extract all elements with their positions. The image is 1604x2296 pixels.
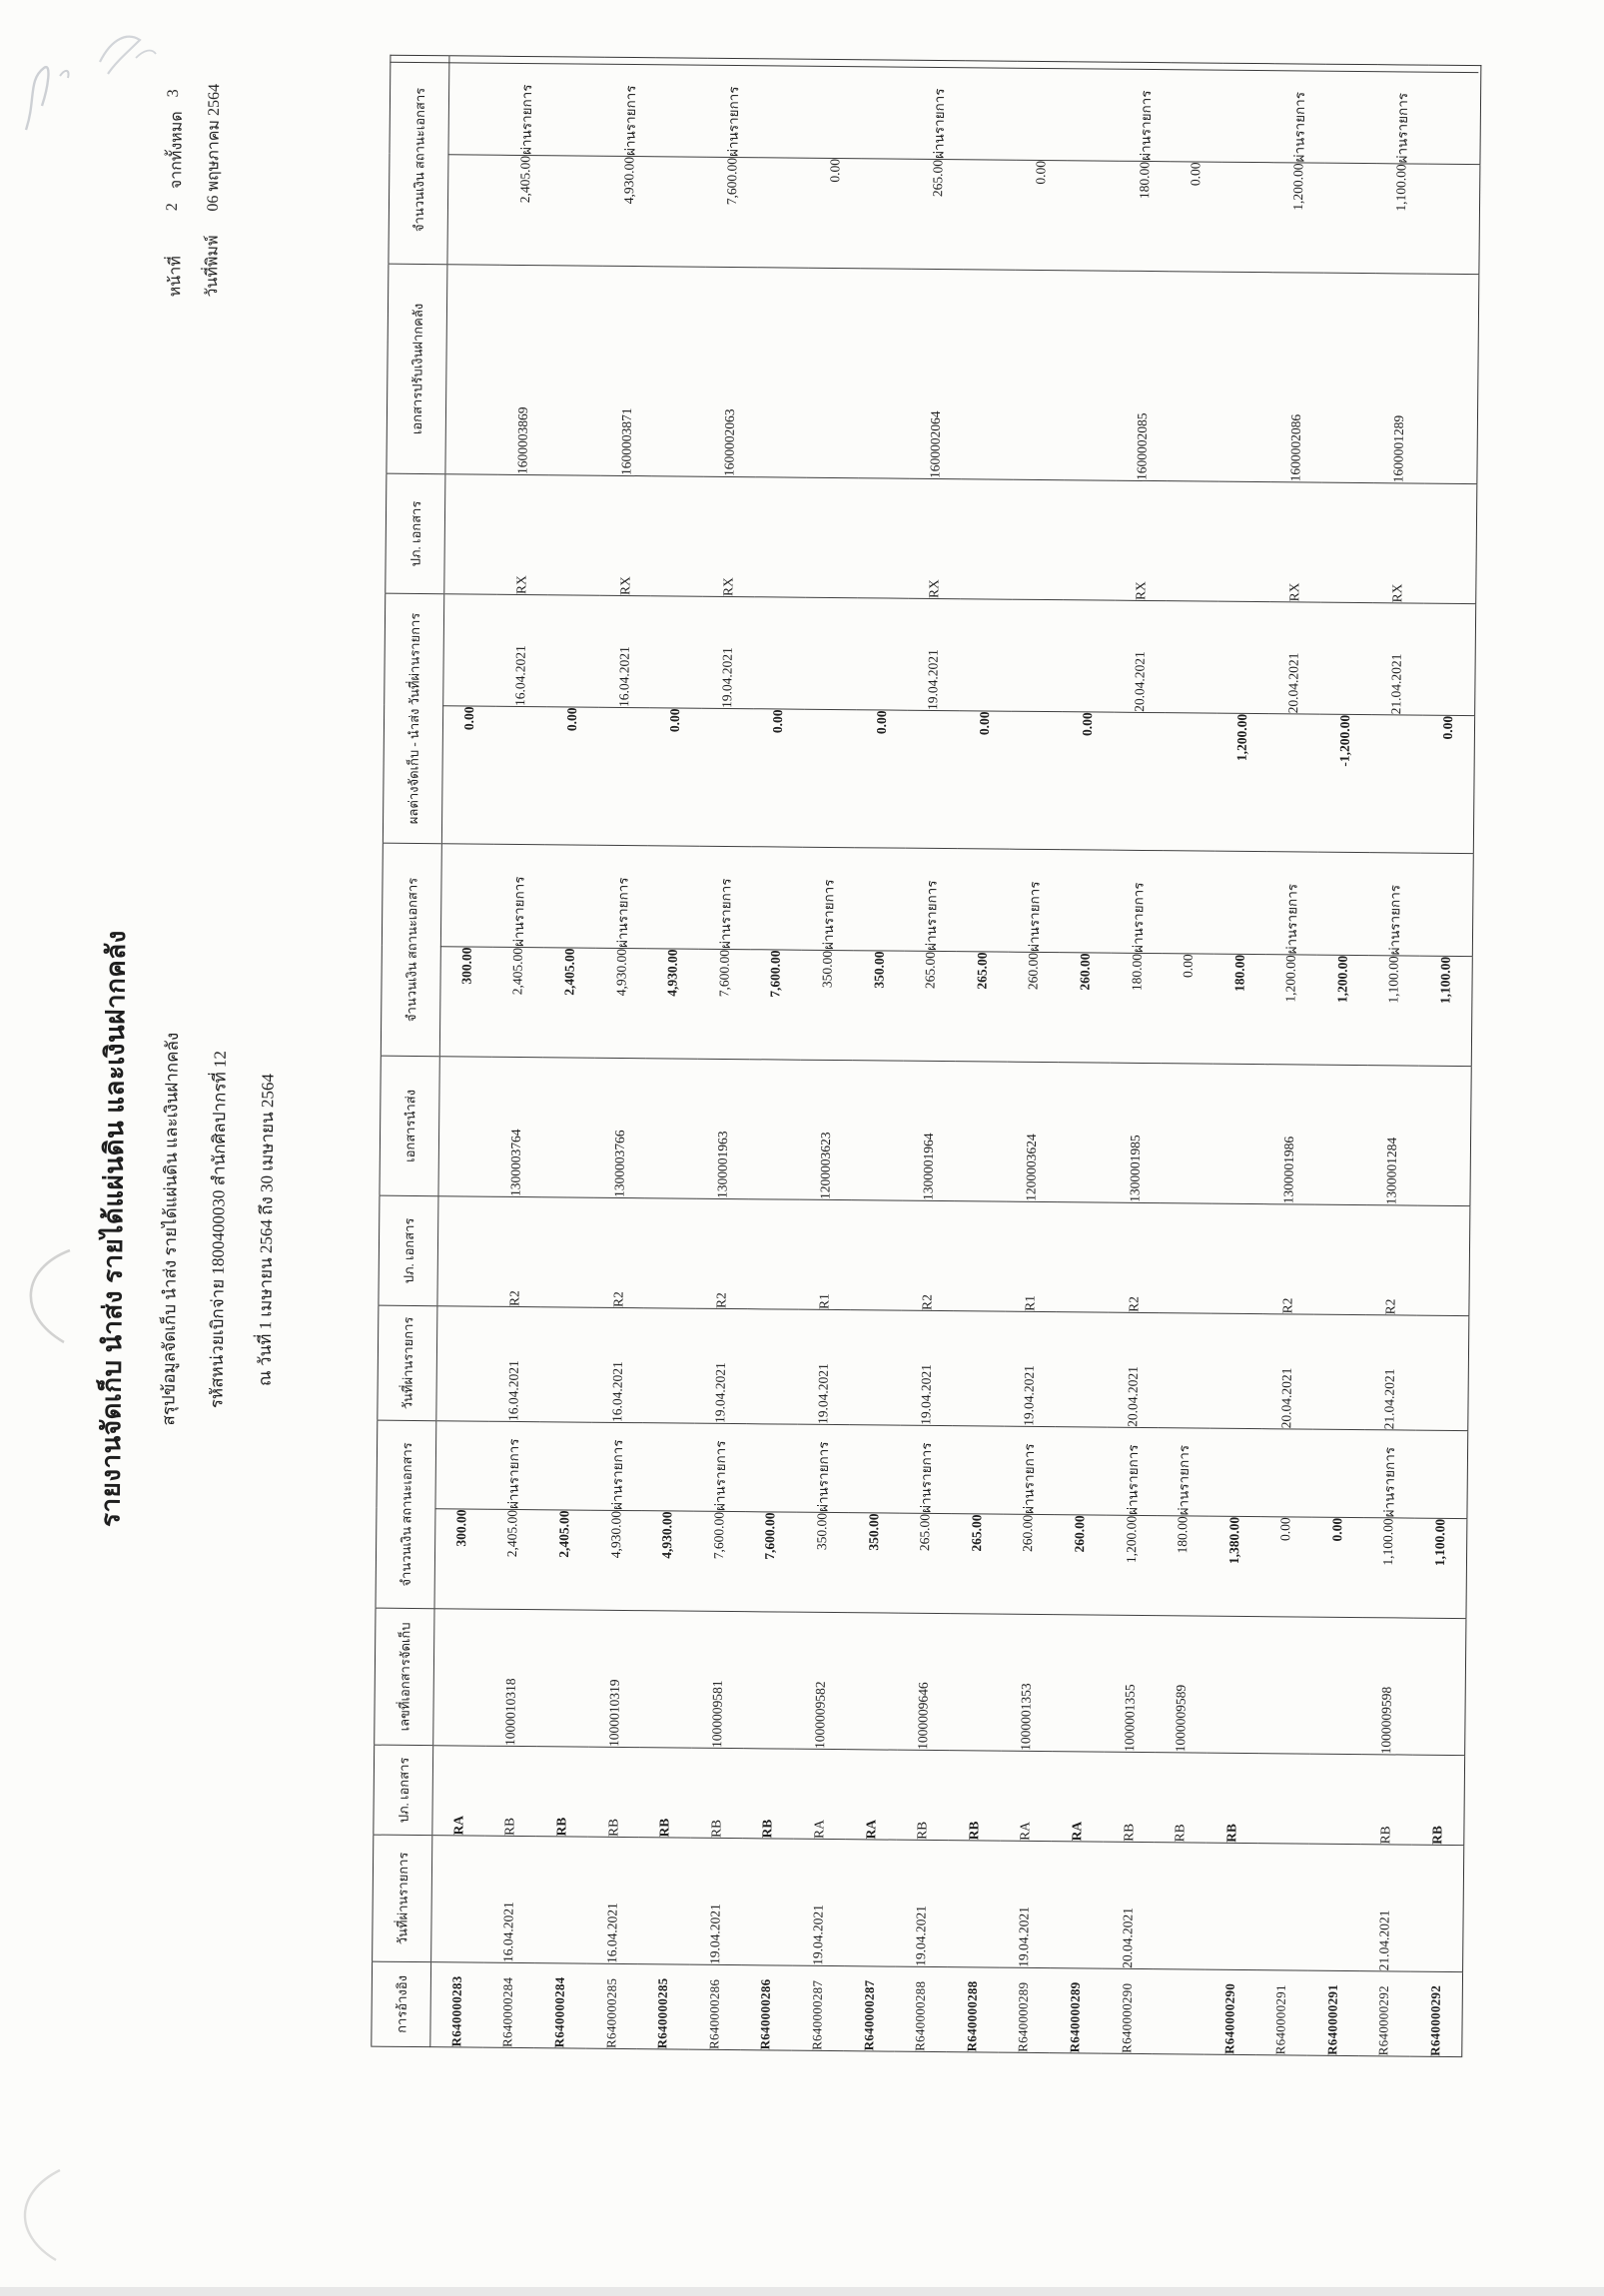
page-total: 3 bbox=[165, 89, 190, 97]
cell: RB bbox=[690, 1748, 742, 1838]
cell: 16.04.2021 bbox=[488, 1306, 541, 1421]
cell bbox=[1164, 713, 1216, 851]
page-of-label: จากทั้งหมด bbox=[164, 111, 190, 189]
cell: 2,405.00 bbox=[491, 947, 544, 1057]
cell bbox=[651, 476, 704, 596]
report-table: การอ้างอิงวันที่ผ่านรายการปภ. เอกสารเลขท… bbox=[371, 55, 1481, 2057]
cell: RX bbox=[1115, 480, 1168, 600]
cell bbox=[844, 1840, 897, 1966]
cell: 0.00 bbox=[1061, 712, 1114, 850]
column-header: จำนวนเงิน สถานะเอกสาร bbox=[381, 843, 441, 1057]
cell bbox=[1013, 270, 1067, 479]
column-header: ปภ. เอกสาร bbox=[379, 1195, 438, 1306]
cell: R1 bbox=[799, 1199, 852, 1309]
cell: ผ่านรายการ bbox=[1106, 1427, 1158, 1516]
cell bbox=[758, 59, 811, 159]
cell: 19.04.2021 bbox=[689, 1838, 742, 1964]
cell: -1,200.00 bbox=[1318, 714, 1371, 852]
cell: 265.00 bbox=[904, 951, 957, 1061]
cell bbox=[1208, 1428, 1260, 1517]
cell bbox=[1220, 162, 1273, 272]
cell: ผ่านรายการ bbox=[1363, 1430, 1415, 1519]
cell bbox=[644, 1198, 697, 1308]
cell bbox=[539, 1307, 592, 1422]
cell: 1000009581 bbox=[691, 1611, 744, 1748]
cell: 21.04.2021 bbox=[1371, 603, 1424, 715]
cell: 1000001355 bbox=[1104, 1615, 1157, 1752]
cell: R640000284 bbox=[482, 1962, 534, 2047]
cell: 1300003766 bbox=[593, 1058, 646, 1197]
cell: ผ่านรายการ bbox=[1369, 853, 1422, 957]
cell bbox=[953, 1201, 1006, 1311]
cell bbox=[1055, 1312, 1108, 1427]
cell: 1600003871 bbox=[600, 266, 654, 475]
cell bbox=[957, 849, 1010, 953]
cell bbox=[860, 159, 913, 269]
cell bbox=[741, 1839, 794, 1965]
cell: RB bbox=[1360, 1755, 1412, 1845]
cell: R640000287 bbox=[791, 1965, 843, 2050]
cell bbox=[1325, 64, 1378, 164]
cell: 180.00 bbox=[1213, 954, 1266, 1064]
cell bbox=[547, 475, 600, 595]
cell bbox=[964, 61, 1017, 161]
cell bbox=[1163, 851, 1215, 955]
cell: R2 bbox=[1262, 1204, 1315, 1314]
cell: 350.00 bbox=[847, 1513, 900, 1613]
cell bbox=[1422, 603, 1475, 715]
cell bbox=[1153, 1969, 1204, 2054]
cell: ผ่านรายการ bbox=[1273, 64, 1326, 164]
cell bbox=[1062, 600, 1115, 712]
report-table-wrapper: การอ้างอิงวันที่ผ่านรายการปภ. เอกสารเลขท… bbox=[371, 56, 1478, 2057]
cell: 1200003624 bbox=[1006, 1062, 1059, 1201]
cell: RB bbox=[1155, 1753, 1206, 1843]
cell: 300.00 bbox=[434, 1509, 487, 1609]
cell: RB bbox=[897, 1750, 949, 1840]
cell bbox=[435, 1421, 488, 1510]
cell: 19.04.2021 bbox=[895, 1840, 948, 1966]
cell: ผ่านรายการ bbox=[905, 848, 958, 952]
cell: ผ่านรายการ bbox=[913, 60, 966, 160]
cell: ผ่านรายการ bbox=[1265, 852, 1318, 956]
cell: R640000286 bbox=[740, 1965, 792, 2050]
cell: 16.04.2021 bbox=[483, 1836, 536, 1962]
cell bbox=[846, 1613, 899, 1750]
cell: 180.00 bbox=[1157, 1516, 1209, 1616]
cell: RA bbox=[793, 1749, 845, 1839]
cell: RA bbox=[432, 1746, 485, 1836]
cell: 1,200.00 bbox=[1264, 955, 1317, 1065]
cell: 4,930.00 bbox=[595, 948, 648, 1058]
cell: 1000009582 bbox=[794, 1612, 847, 1749]
cell bbox=[542, 1058, 595, 1197]
cell bbox=[1063, 480, 1116, 600]
cell bbox=[438, 1057, 491, 1196]
cell bbox=[1309, 1617, 1362, 1754]
cell: R640000287 bbox=[843, 1966, 895, 2051]
cell: 1300001964 bbox=[903, 1061, 956, 1200]
cell: RX bbox=[599, 475, 652, 595]
cell bbox=[431, 1836, 484, 1962]
cell bbox=[750, 847, 803, 951]
cell: R640000288 bbox=[946, 1967, 998, 2052]
cell: RB bbox=[1205, 1753, 1257, 1843]
cell bbox=[851, 1061, 904, 1200]
column-header: ผลต่างจัดเก็บ - นำส่ง วันที่ผ่านรายการ bbox=[383, 593, 443, 844]
cell bbox=[856, 598, 909, 710]
cell: ผ่านรายการ bbox=[487, 1421, 539, 1510]
cell: 20.04.2021 bbox=[1261, 1314, 1314, 1429]
cell: R640000290 bbox=[1101, 1968, 1153, 2053]
cell: RB bbox=[484, 1746, 536, 1836]
cell: 20.04.2021 bbox=[1102, 1842, 1155, 1968]
cell bbox=[650, 596, 703, 708]
column-header: วันที่ผ่านรายการ bbox=[373, 1835, 432, 1962]
cell: 0.00 bbox=[1259, 1517, 1312, 1617]
cell: RA bbox=[845, 1750, 897, 1840]
cell bbox=[807, 268, 861, 477]
cell bbox=[1067, 161, 1120, 271]
cell: 1300001985 bbox=[1109, 1063, 1162, 1202]
cell: 16.04.2021 bbox=[586, 1837, 639, 1963]
cell bbox=[745, 1424, 797, 1513]
cell bbox=[1423, 483, 1476, 603]
cell bbox=[747, 1199, 800, 1309]
page-number: 2 bbox=[164, 203, 189, 211]
cell: 1,100.00 bbox=[1375, 164, 1428, 274]
cell: RB bbox=[948, 1751, 1000, 1841]
cell bbox=[1221, 63, 1274, 163]
cell bbox=[1214, 851, 1267, 955]
cell: RB bbox=[587, 1747, 639, 1837]
cell: 7,600.00 bbox=[692, 1511, 745, 1611]
cell bbox=[1319, 602, 1372, 714]
cell: R640000292 bbox=[1410, 1971, 1463, 2056]
cell bbox=[1416, 1315, 1469, 1430]
cell bbox=[546, 595, 599, 707]
cell: 1000001353 bbox=[1001, 1614, 1054, 1751]
cell bbox=[743, 1612, 796, 1749]
cell bbox=[1065, 271, 1119, 480]
cell: R640000284 bbox=[533, 1963, 585, 2048]
cell bbox=[1320, 482, 1373, 602]
cell: 16.04.2021 bbox=[598, 595, 651, 707]
cell bbox=[1418, 1066, 1471, 1205]
cell: 1300001284 bbox=[1366, 1066, 1419, 1205]
cell: 20.04.2021 bbox=[1107, 1312, 1160, 1427]
cell bbox=[1050, 1842, 1103, 1968]
cell bbox=[1257, 1754, 1309, 1844]
cell bbox=[1369, 715, 1422, 853]
cell: R2 bbox=[1365, 1205, 1418, 1315]
cell: 260.00 bbox=[1002, 1514, 1055, 1614]
cell: R640000291 bbox=[1306, 1970, 1358, 2055]
cell: R640000288 bbox=[895, 1966, 947, 2051]
cell bbox=[1161, 1064, 1213, 1203]
cell: ผ่านรายการ bbox=[500, 56, 553, 156]
cell bbox=[1211, 1064, 1264, 1203]
cell: 0.00 bbox=[1170, 162, 1222, 272]
cell bbox=[700, 708, 753, 846]
cell: RA bbox=[1051, 1752, 1103, 1842]
cell bbox=[1068, 62, 1121, 162]
cell bbox=[541, 1197, 594, 1307]
cell bbox=[1307, 1844, 1360, 1970]
cell: 7,600.00 bbox=[744, 1512, 797, 1612]
cell: ผ่านรายการ bbox=[1112, 850, 1165, 954]
cell: 1,200.00 bbox=[1105, 1515, 1158, 1615]
cell bbox=[954, 1062, 1007, 1201]
column-header: เอกสารปรับเงินฝากคลัง bbox=[387, 264, 447, 474]
cell bbox=[1159, 1313, 1211, 1428]
cell bbox=[1415, 1430, 1468, 1519]
cell bbox=[1420, 853, 1473, 957]
cell: 0.00 bbox=[441, 706, 494, 844]
cell bbox=[1171, 63, 1223, 163]
cell: RX bbox=[496, 474, 549, 594]
cell: 265.00 bbox=[956, 952, 1009, 1062]
cell: 1,100.00 bbox=[1367, 956, 1420, 1066]
cell: ผ่านรายการ bbox=[1119, 62, 1172, 162]
cell bbox=[652, 267, 706, 476]
cell: 265.00 bbox=[950, 1514, 1003, 1614]
cell bbox=[1312, 1429, 1364, 1518]
cell: R2 bbox=[489, 1196, 542, 1306]
cell bbox=[951, 1426, 1003, 1515]
cell: 0.00 bbox=[809, 158, 862, 268]
cell: 7,600.00 bbox=[749, 950, 802, 1060]
cell: 1300001963 bbox=[696, 1059, 749, 1198]
cell bbox=[1209, 1313, 1262, 1428]
cell bbox=[445, 265, 499, 474]
cell bbox=[1266, 714, 1319, 852]
cell: RX bbox=[702, 476, 755, 596]
cell: 1300003764 bbox=[490, 1057, 543, 1196]
cell: RX bbox=[1372, 483, 1425, 603]
column-header: เลขที่เอกสารจัดเก็บ bbox=[375, 1608, 434, 1746]
cell: 2,405.00 bbox=[543, 948, 596, 1058]
cell bbox=[552, 57, 605, 157]
cell bbox=[805, 477, 858, 597]
cell: 20.04.2021 bbox=[1114, 600, 1167, 712]
cell bbox=[949, 1614, 1002, 1751]
cell bbox=[1308, 1754, 1360, 1844]
cell bbox=[1317, 852, 1370, 956]
cell bbox=[493, 706, 546, 844]
cell: 7,600.00 bbox=[705, 157, 758, 267]
cell: 19.04.2021 bbox=[792, 1839, 845, 1965]
cell: 350.00 bbox=[853, 951, 906, 1061]
cell: 1600001289 bbox=[1373, 274, 1427, 483]
cell bbox=[1160, 1203, 1212, 1313]
cell: R2 bbox=[902, 1200, 955, 1310]
cell: R2 bbox=[592, 1197, 645, 1307]
cell: 0.00 bbox=[1421, 715, 1474, 853]
cell bbox=[1217, 481, 1270, 601]
column-header: ปภ. เอกสาร bbox=[386, 473, 445, 594]
cell bbox=[1204, 1843, 1257, 1969]
cell: ผ่านรายการ bbox=[1008, 849, 1061, 953]
report-title: รายงานจัดเก็บ นำส่ง รายได้แผ่นดิน และเงิ… bbox=[89, 729, 139, 1728]
cell bbox=[443, 594, 496, 706]
cell bbox=[1016, 61, 1069, 161]
report-subtitle: สรุปข้อมูลจัดเก็บ นำส่ง รายได้แผ่นดิน แล… bbox=[155, 730, 187, 1729]
cell: ผ่านรายการ bbox=[603, 57, 656, 157]
cell: 4,930.00 bbox=[641, 1511, 694, 1611]
cell: RB bbox=[1103, 1752, 1155, 1842]
cell bbox=[748, 1060, 801, 1199]
cell: 0.00 bbox=[648, 708, 701, 846]
cell bbox=[436, 1306, 489, 1421]
column-header: จำนวนเงิน สถานะเอกสาร bbox=[389, 55, 449, 265]
cell bbox=[1258, 1617, 1311, 1754]
cell bbox=[1410, 1845, 1463, 1971]
cell bbox=[947, 1841, 1000, 1967]
cell: R640000290 bbox=[1203, 1969, 1255, 2054]
cell bbox=[534, 1837, 587, 1963]
cell bbox=[803, 709, 856, 847]
cell: 300.00 bbox=[439, 947, 492, 1057]
cell: 19.04.2021 bbox=[999, 1841, 1052, 1967]
cell: 20.04.2021 bbox=[1268, 602, 1321, 714]
cell bbox=[437, 1196, 490, 1306]
cell: 4,930.00 bbox=[646, 949, 699, 1059]
cell: 265.00 bbox=[899, 1513, 952, 1613]
cell bbox=[1058, 1063, 1111, 1202]
cell bbox=[1427, 164, 1480, 274]
cell bbox=[757, 158, 810, 268]
cell: R640000285 bbox=[637, 1964, 689, 2049]
cell bbox=[906, 710, 959, 848]
cell bbox=[804, 597, 857, 709]
cell: 1600002064 bbox=[910, 269, 964, 478]
cell: 19.04.2021 bbox=[701, 596, 754, 708]
cell: 1600002063 bbox=[703, 267, 757, 476]
report-date-range: ณ วันที่ 1 เมษายน 2564 ถึง 30 เมษายน 256… bbox=[251, 730, 283, 1729]
cell bbox=[850, 1200, 903, 1310]
cell: ผ่านรายการ bbox=[492, 844, 545, 948]
cell: 260.00 bbox=[1007, 952, 1060, 1062]
cell bbox=[1256, 1844, 1309, 1970]
cell: 0.00 bbox=[855, 710, 908, 848]
cell: 350.00 bbox=[801, 950, 854, 1060]
cell: ผ่านรายการ bbox=[797, 1424, 849, 1513]
cell bbox=[959, 599, 1012, 711]
cell: R640000286 bbox=[688, 1964, 740, 2049]
cell bbox=[549, 266, 603, 475]
cell: 180.00 bbox=[1110, 953, 1163, 1063]
cell: 1,100.00 bbox=[1362, 1518, 1415, 1618]
cell: 1,380.00 bbox=[1207, 1516, 1260, 1616]
cell: R2 bbox=[1108, 1202, 1161, 1312]
cell: 4,930.00 bbox=[602, 156, 655, 266]
cell: ผ่านรายการ bbox=[596, 845, 649, 949]
cell bbox=[854, 848, 907, 952]
cell bbox=[1167, 481, 1219, 601]
cell: ผ่านรายการ bbox=[590, 1422, 642, 1511]
cell: R640000291 bbox=[1255, 1970, 1307, 2055]
cell bbox=[1321, 273, 1375, 482]
cell bbox=[647, 846, 700, 950]
print-date-row: วันที่พิมพ์ 06 พฤษภาคม 2564 bbox=[200, 84, 227, 298]
cell bbox=[597, 707, 650, 845]
cell bbox=[645, 1059, 698, 1198]
cell bbox=[642, 1423, 694, 1512]
cell bbox=[1113, 712, 1166, 850]
cell: 1,200.00 bbox=[1272, 163, 1325, 273]
cell: R1 bbox=[1005, 1201, 1058, 1311]
scanned-report-page: { "page_header": { "page_label": "หน้าที… bbox=[0, 0, 1604, 2287]
cell: 19.04.2021 bbox=[901, 1310, 954, 1425]
cell bbox=[753, 597, 806, 709]
cell: 19.04.2021 bbox=[694, 1308, 747, 1423]
cell: ผ่านรายการ bbox=[900, 1425, 952, 1514]
cell bbox=[655, 58, 708, 158]
cell: 0.00 bbox=[545, 707, 598, 845]
cell: 0.00 bbox=[1162, 954, 1214, 1064]
cell bbox=[1417, 1205, 1470, 1315]
cell: 260.00 bbox=[1054, 1515, 1107, 1615]
cell: 350.00 bbox=[796, 1512, 849, 1612]
cell: 1,100.00 bbox=[1419, 956, 1472, 1066]
cell bbox=[754, 477, 807, 597]
cell bbox=[1428, 65, 1481, 165]
cell bbox=[637, 1838, 690, 1964]
cell: RB bbox=[639, 1748, 691, 1838]
rotated-report-sheet: หน้าที่ 2 จากทั้งหมด 3 วันที่พิมพ์ 06 พฤ… bbox=[0, 0, 1604, 2296]
cell bbox=[755, 268, 809, 477]
cell bbox=[1012, 479, 1065, 599]
cell: 1600003869 bbox=[497, 265, 551, 474]
column-header: เอกสารนำส่ง bbox=[380, 1056, 439, 1196]
cell: 1200003623 bbox=[800, 1060, 853, 1199]
cell: 0.00 bbox=[751, 709, 804, 847]
cell bbox=[1052, 1615, 1105, 1752]
cell: ผ่านรายการ bbox=[699, 846, 752, 950]
cell: 16.04.2021 bbox=[495, 594, 548, 706]
cell: RX bbox=[909, 478, 962, 598]
cell: RB bbox=[1412, 1755, 1465, 1845]
cell bbox=[1412, 1618, 1465, 1755]
cell bbox=[1057, 1202, 1110, 1312]
cell bbox=[857, 478, 910, 598]
cell: 2,405.00 bbox=[499, 155, 552, 265]
page-label: หน้าที่ bbox=[163, 225, 189, 297]
cell: R640000283 bbox=[430, 1962, 483, 2047]
cell: 1000010318 bbox=[485, 1609, 538, 1746]
cell bbox=[1216, 601, 1269, 713]
cell: R2 bbox=[695, 1198, 748, 1308]
cell: 2,405.00 bbox=[538, 1510, 591, 1610]
cell: 19.04.2021 bbox=[908, 598, 961, 710]
cell bbox=[1060, 850, 1113, 954]
cell bbox=[539, 1422, 591, 1511]
cell: 7,600.00 bbox=[698, 949, 751, 1059]
cell bbox=[746, 1309, 799, 1424]
cell: R640000289 bbox=[1049, 1968, 1101, 2053]
cell: ผ่านรายการ bbox=[693, 1423, 745, 1512]
cell: 1600002085 bbox=[1116, 271, 1170, 480]
cell: 1,200.00 bbox=[1215, 713, 1268, 851]
cell: ผ่านรายการ bbox=[1158, 1428, 1209, 1517]
cell: 0.00 bbox=[958, 711, 1011, 849]
cell: RA bbox=[1000, 1751, 1052, 1841]
cell: ผ่านรายการ bbox=[706, 58, 759, 158]
cell bbox=[544, 845, 597, 949]
cell bbox=[551, 156, 604, 266]
cell bbox=[1218, 272, 1272, 481]
